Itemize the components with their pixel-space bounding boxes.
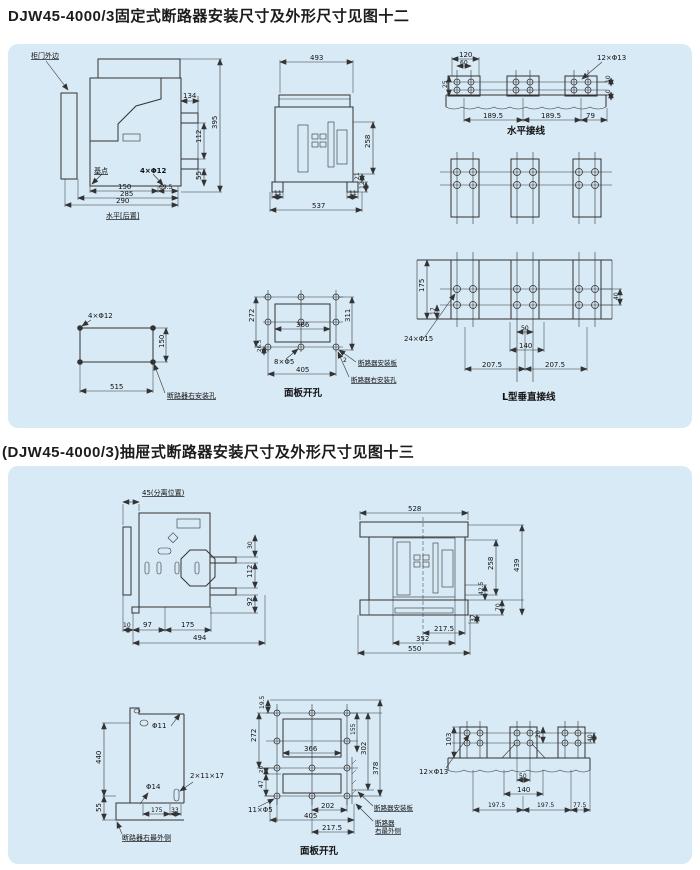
section-title-fixed: DJW45-4000/3固定式断路器安装尺寸及外形尺寸见图十二 [8, 5, 409, 26]
dim-label: 550 [408, 645, 421, 653]
dim-label: 11 [349, 190, 357, 197]
door-edge-label: 柜门外边 [31, 51, 59, 60]
dim-label: 33 [171, 807, 179, 814]
dim-label: 207.5 [482, 361, 502, 369]
dim-label: 19.5 [259, 695, 266, 709]
view-caption: 面板开孔 [300, 845, 339, 857]
dim-label: 366 [296, 321, 310, 329]
panel-cutout-drawer-lines [257, 700, 382, 834]
drawer-detail-diagram: 440 55 Φ11 Φ14 2×11×17 175 33 断路器右最外侧 [60, 686, 255, 856]
dim-label: 112 [246, 565, 254, 578]
view-caption: 面板开孔 [284, 387, 323, 399]
part-label: 断路器安装板 [358, 358, 398, 367]
dim-label: 258 [487, 557, 495, 570]
dim-label: 42.5 [478, 581, 485, 595]
dim-label: 77.5 [573, 802, 587, 809]
dim-label: 272 [248, 309, 256, 322]
panel-cutout-fixed-diagram: 272 26.5 366 311 8×Φ5 405 2 断路器安装板 断路器右安… [248, 272, 406, 414]
part-label: 右最外侧 [375, 826, 401, 835]
dim-label: 37 [470, 614, 477, 622]
dim-label: 21 [354, 172, 361, 180]
dim-label: 537 [312, 202, 325, 210]
hole-label: Φ11 [152, 722, 166, 730]
dim-label: 494 [193, 634, 207, 642]
dim-label: 69.5 [159, 184, 173, 191]
dim-label: 20 [259, 766, 265, 773]
dim-label: 175 [418, 279, 426, 292]
dim-label: 26.5 [257, 339, 263, 352]
dim-label: 47 [258, 780, 265, 788]
dim-label: 120 [459, 51, 472, 59]
dim-label: 439 [513, 559, 521, 572]
dim-label: 97 [143, 621, 152, 629]
drawer-busbar-lines [446, 721, 596, 812]
dim-label: 134 [183, 92, 197, 100]
dim-label: 103 [445, 733, 453, 746]
dim-label: 189.5 [483, 112, 503, 120]
fixed-front-view-diagram: 493 258 21 12 11 11 537 [250, 52, 405, 217]
dim-label: 55 [95, 803, 103, 812]
drawer-side-view-diagram: 45(分离位置) 30 112 92 10 97 175 494 [98, 480, 288, 665]
dim-label: 405 [296, 366, 309, 374]
dim-label: 70 [495, 603, 502, 611]
dim-label: 30 [247, 541, 254, 549]
fixed-side-view-diagram: 柜门外边 134 395 112 55 基点 4×Φ12 150 69.5 28… [28, 46, 258, 228]
dim-label: 10 [605, 75, 612, 83]
view-caption: 水平接线 [507, 125, 546, 137]
holes-label: 24×Φ15 [404, 335, 433, 343]
holes-label: 8×Φ5 [274, 358, 294, 366]
holes-label: 11×Φ5 [248, 806, 273, 814]
dim-label: 302 [360, 742, 368, 755]
panel-cutout-fixed-lines [254, 290, 356, 377]
holes-label: 12×Φ13 [419, 768, 448, 776]
dim-label: 197.5 [488, 802, 505, 809]
dim-label: 352 [416, 635, 429, 643]
part-label: 断路器右最外侧 [122, 833, 171, 842]
dim-label: 11 [274, 190, 282, 197]
mount-holes-diagram: 4×Φ12 150 515 断路器右安装孔 [55, 296, 260, 408]
drawer-detail-lines [102, 708, 193, 834]
dim-label: 217.5 [322, 824, 342, 832]
dim-label: 155 [350, 723, 357, 735]
dim-label: 55 [195, 171, 203, 180]
dim-label: 12 [359, 181, 366, 189]
dim-label: 175 [181, 621, 194, 629]
dim-label: 258 [364, 135, 372, 148]
dim-label: 10 [605, 89, 612, 97]
part-label: 断路器右安装孔 [351, 375, 397, 384]
dim-label: 528 [408, 505, 421, 513]
part-label: 断路器 [375, 818, 395, 827]
dim-label: 150 [158, 335, 166, 348]
dim-label: 175 [151, 807, 163, 814]
catalog-page: { "titles": { "fig12": "DJW45-4000/3固定式断… [0, 0, 700, 870]
panel-cutout-drawer-diagram: 19.5 272 20 47 366 155 302 378 11×Φ5 202… [246, 680, 436, 870]
dim-label: 366 [304, 745, 318, 753]
position-label: 45(分离位置) [142, 488, 185, 497]
dim-label: 10 [123, 622, 131, 629]
dim-label: 272 [250, 729, 258, 742]
holes-label: 4×Φ12 [88, 312, 113, 320]
dim-label: 493 [310, 54, 323, 62]
dim-label: 202 [321, 802, 334, 810]
dim-label: 50 [519, 773, 527, 780]
l-type-vertical-diagram: 175 17 24×Φ15 50 140 207.5 207.5 40 L型垂直… [402, 142, 698, 414]
base-point-label: 基点 [94, 166, 108, 175]
holes-label: 4×Φ12 [140, 167, 167, 175]
dim-label: 395 [211, 116, 219, 129]
drawer-busbar-diagram: 103 12×Φ13 20 40 50 140 197.5 197.5 77.5 [416, 686, 698, 836]
view-caption: L型垂直接线 [502, 391, 556, 403]
section-title-drawout: (DJW45-4000/3)抽屉式断路器安装尺寸及外形尺寸见图十三 [2, 441, 414, 462]
dim-label: 112 [195, 130, 203, 143]
dim-label: 92 [246, 597, 254, 606]
dim-label: 140 [517, 786, 530, 794]
dim-label: 405 [304, 812, 317, 820]
dim-label: 17 [430, 307, 437, 315]
dim-label: 79 [586, 112, 595, 120]
dim-label: 2 [343, 357, 347, 364]
dim-label: 311 [344, 309, 352, 322]
hole-label: Φ14 [146, 783, 161, 791]
dim-label: 189.5 [541, 112, 561, 120]
dim-label: 217.5 [434, 625, 454, 633]
dim-label: 197.5 [537, 802, 554, 809]
holes-label: 12×Φ13 [597, 54, 626, 62]
dim-label: 25 [442, 80, 449, 88]
slot-label: 2×11×17 [190, 772, 224, 780]
part-label: 断路器右安装孔 [167, 391, 216, 400]
dim-label: 60 [460, 60, 468, 67]
dim-label: 20 [535, 730, 542, 738]
drawer-front-view-diagram: 528 258 42.5 70 439 37 217.5 352 550 [338, 492, 548, 677]
part-label: 断路器安装板 [374, 803, 414, 812]
dim-label: 290 [116, 197, 129, 205]
dim-label: 515 [110, 383, 123, 391]
dim-label: 40 [613, 292, 620, 300]
drawer-front-lines [358, 511, 524, 655]
dim-label: 40 [587, 734, 594, 742]
dim-label: 50 [521, 325, 529, 332]
view-caption: 水平[后置] [106, 211, 140, 220]
dim-label: 207.5 [545, 361, 565, 369]
dim-label: 440 [95, 751, 103, 764]
dim-label: 140 [519, 342, 532, 350]
dim-label: 378 [372, 762, 380, 775]
